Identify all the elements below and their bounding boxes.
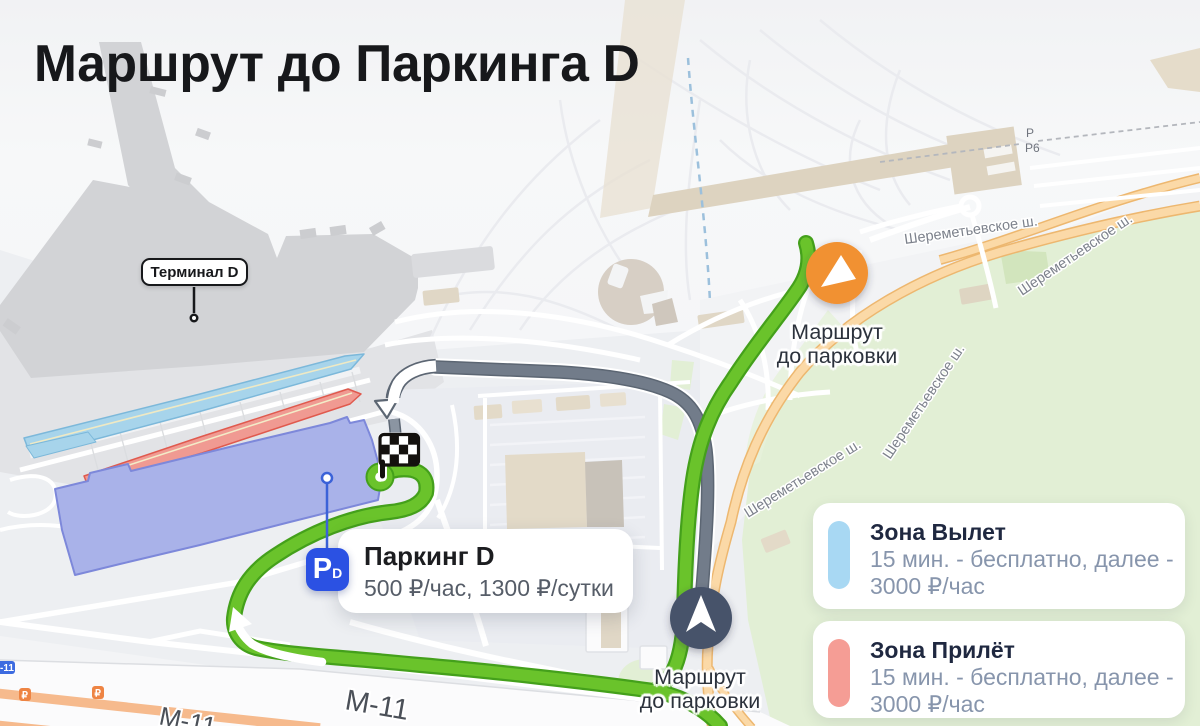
svg-text:Р6: Р6 <box>1025 141 1040 155</box>
svg-text:-11: -11 <box>0 663 14 674</box>
svg-text:₽: ₽ <box>22 691 29 702</box>
svg-text:₽: ₽ <box>95 689 102 700</box>
svg-text:Р: Р <box>1026 126 1034 140</box>
